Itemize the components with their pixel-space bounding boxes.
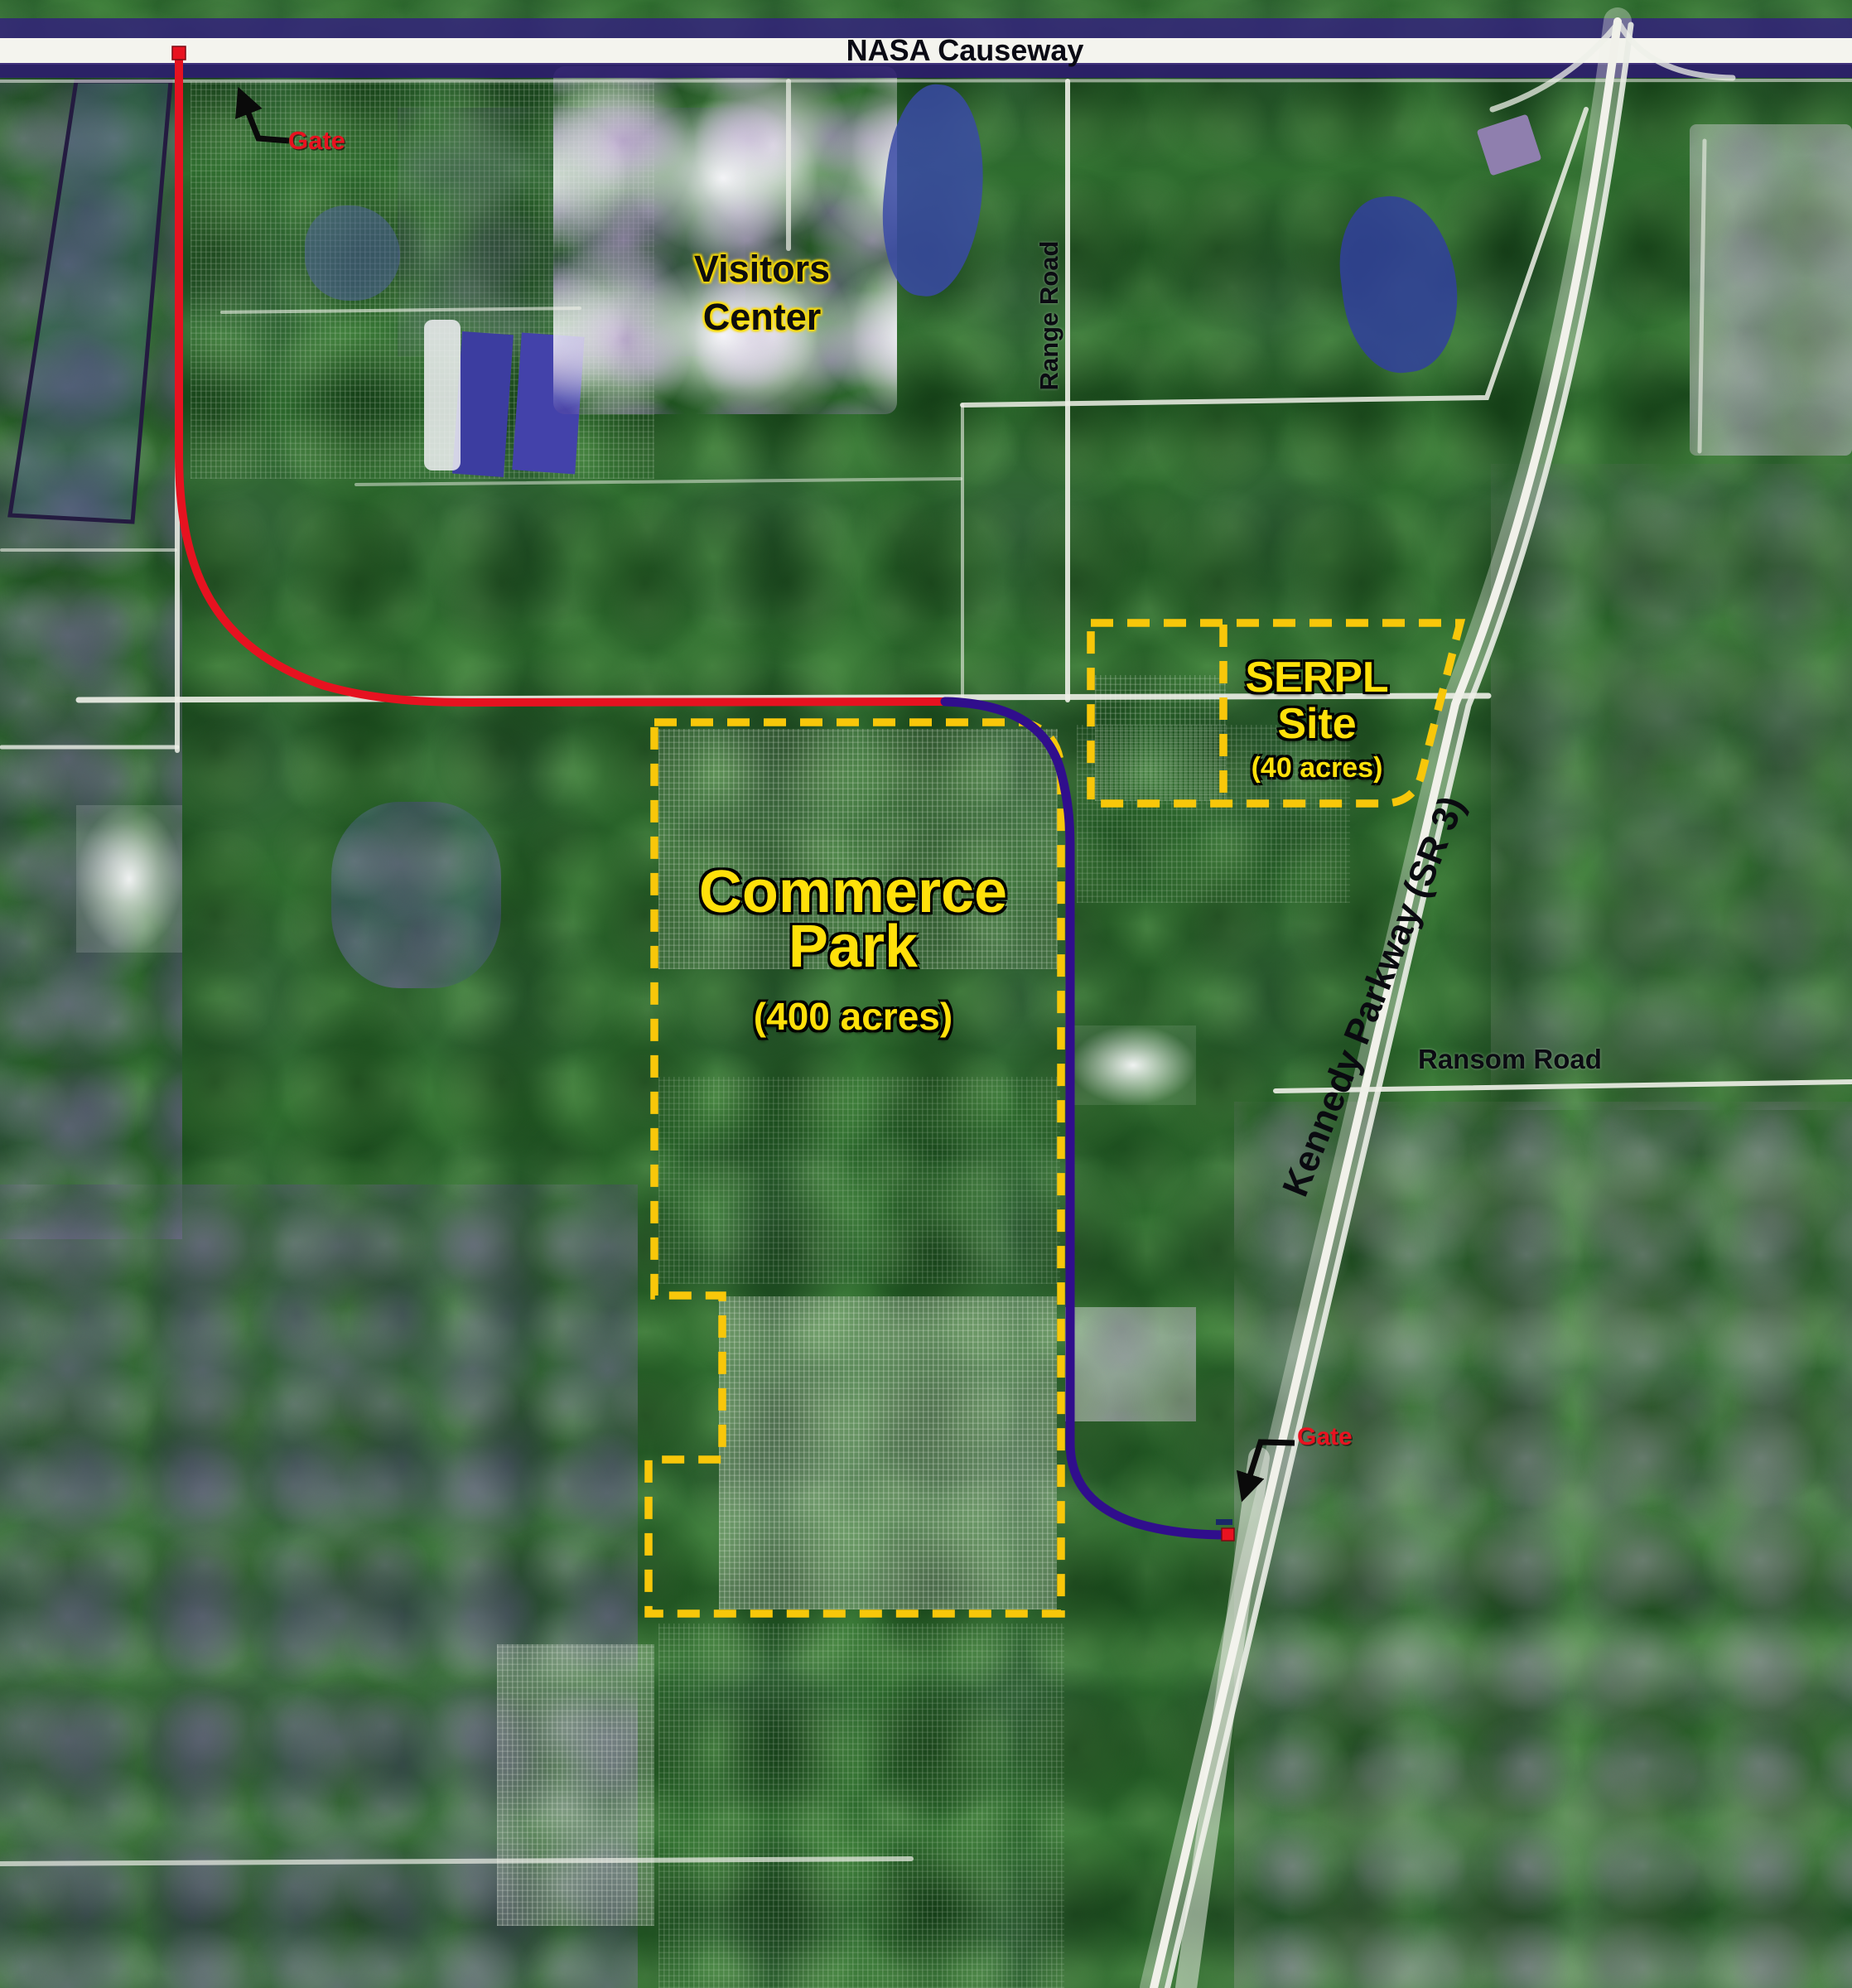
gate-north-label: Gate bbox=[288, 126, 345, 156]
gate-north-arrow bbox=[241, 94, 289, 141]
purple-route-line bbox=[945, 702, 1227, 1535]
visitors-center-line2: Center bbox=[638, 293, 886, 341]
visitors-center-label: Visitors Center bbox=[638, 245, 886, 341]
gate-marker-north bbox=[172, 46, 186, 60]
causeway-frontage-road bbox=[0, 80, 1852, 81]
field-boundary-road bbox=[356, 479, 961, 485]
serpl-line2: Site bbox=[1189, 701, 1445, 747]
commerce-park-label: Commerce Park (400 acres) bbox=[638, 865, 1068, 1037]
serpl-acreage: (40 acres) bbox=[1189, 752, 1445, 784]
nasa-causeway-label: NASA Causeway bbox=[791, 33, 1139, 68]
commerce-park-boundary bbox=[649, 722, 1061, 1614]
gate-bar-south bbox=[1216, 1519, 1232, 1525]
commerce-line1: Commerce bbox=[638, 865, 1068, 919]
serpl-line1: SERPL bbox=[1189, 654, 1445, 701]
marsh-impoundment-outline bbox=[10, 81, 171, 522]
satellite-map: NASA Causeway Gate Visitors Center Range… bbox=[0, 0, 1852, 1988]
serpl-site-label: SERPL Site (40 acres) bbox=[1189, 654, 1445, 784]
gate-south-label: Gate bbox=[1297, 1423, 1353, 1451]
commerce-line2: Park bbox=[638, 919, 1068, 974]
visitors-center-line1: Visitors bbox=[638, 245, 886, 293]
gate-marker-south bbox=[1222, 1528, 1234, 1541]
ransom-road-label: Ransom Road bbox=[1418, 1044, 1602, 1075]
industrial-campus-road bbox=[1700, 141, 1705, 451]
commerce-acreage: (400 acres) bbox=[638, 996, 1068, 1037]
south-road bbox=[0, 1859, 911, 1864]
orchard-road bbox=[222, 308, 580, 312]
range-road-label: Range Road bbox=[1035, 191, 1064, 440]
